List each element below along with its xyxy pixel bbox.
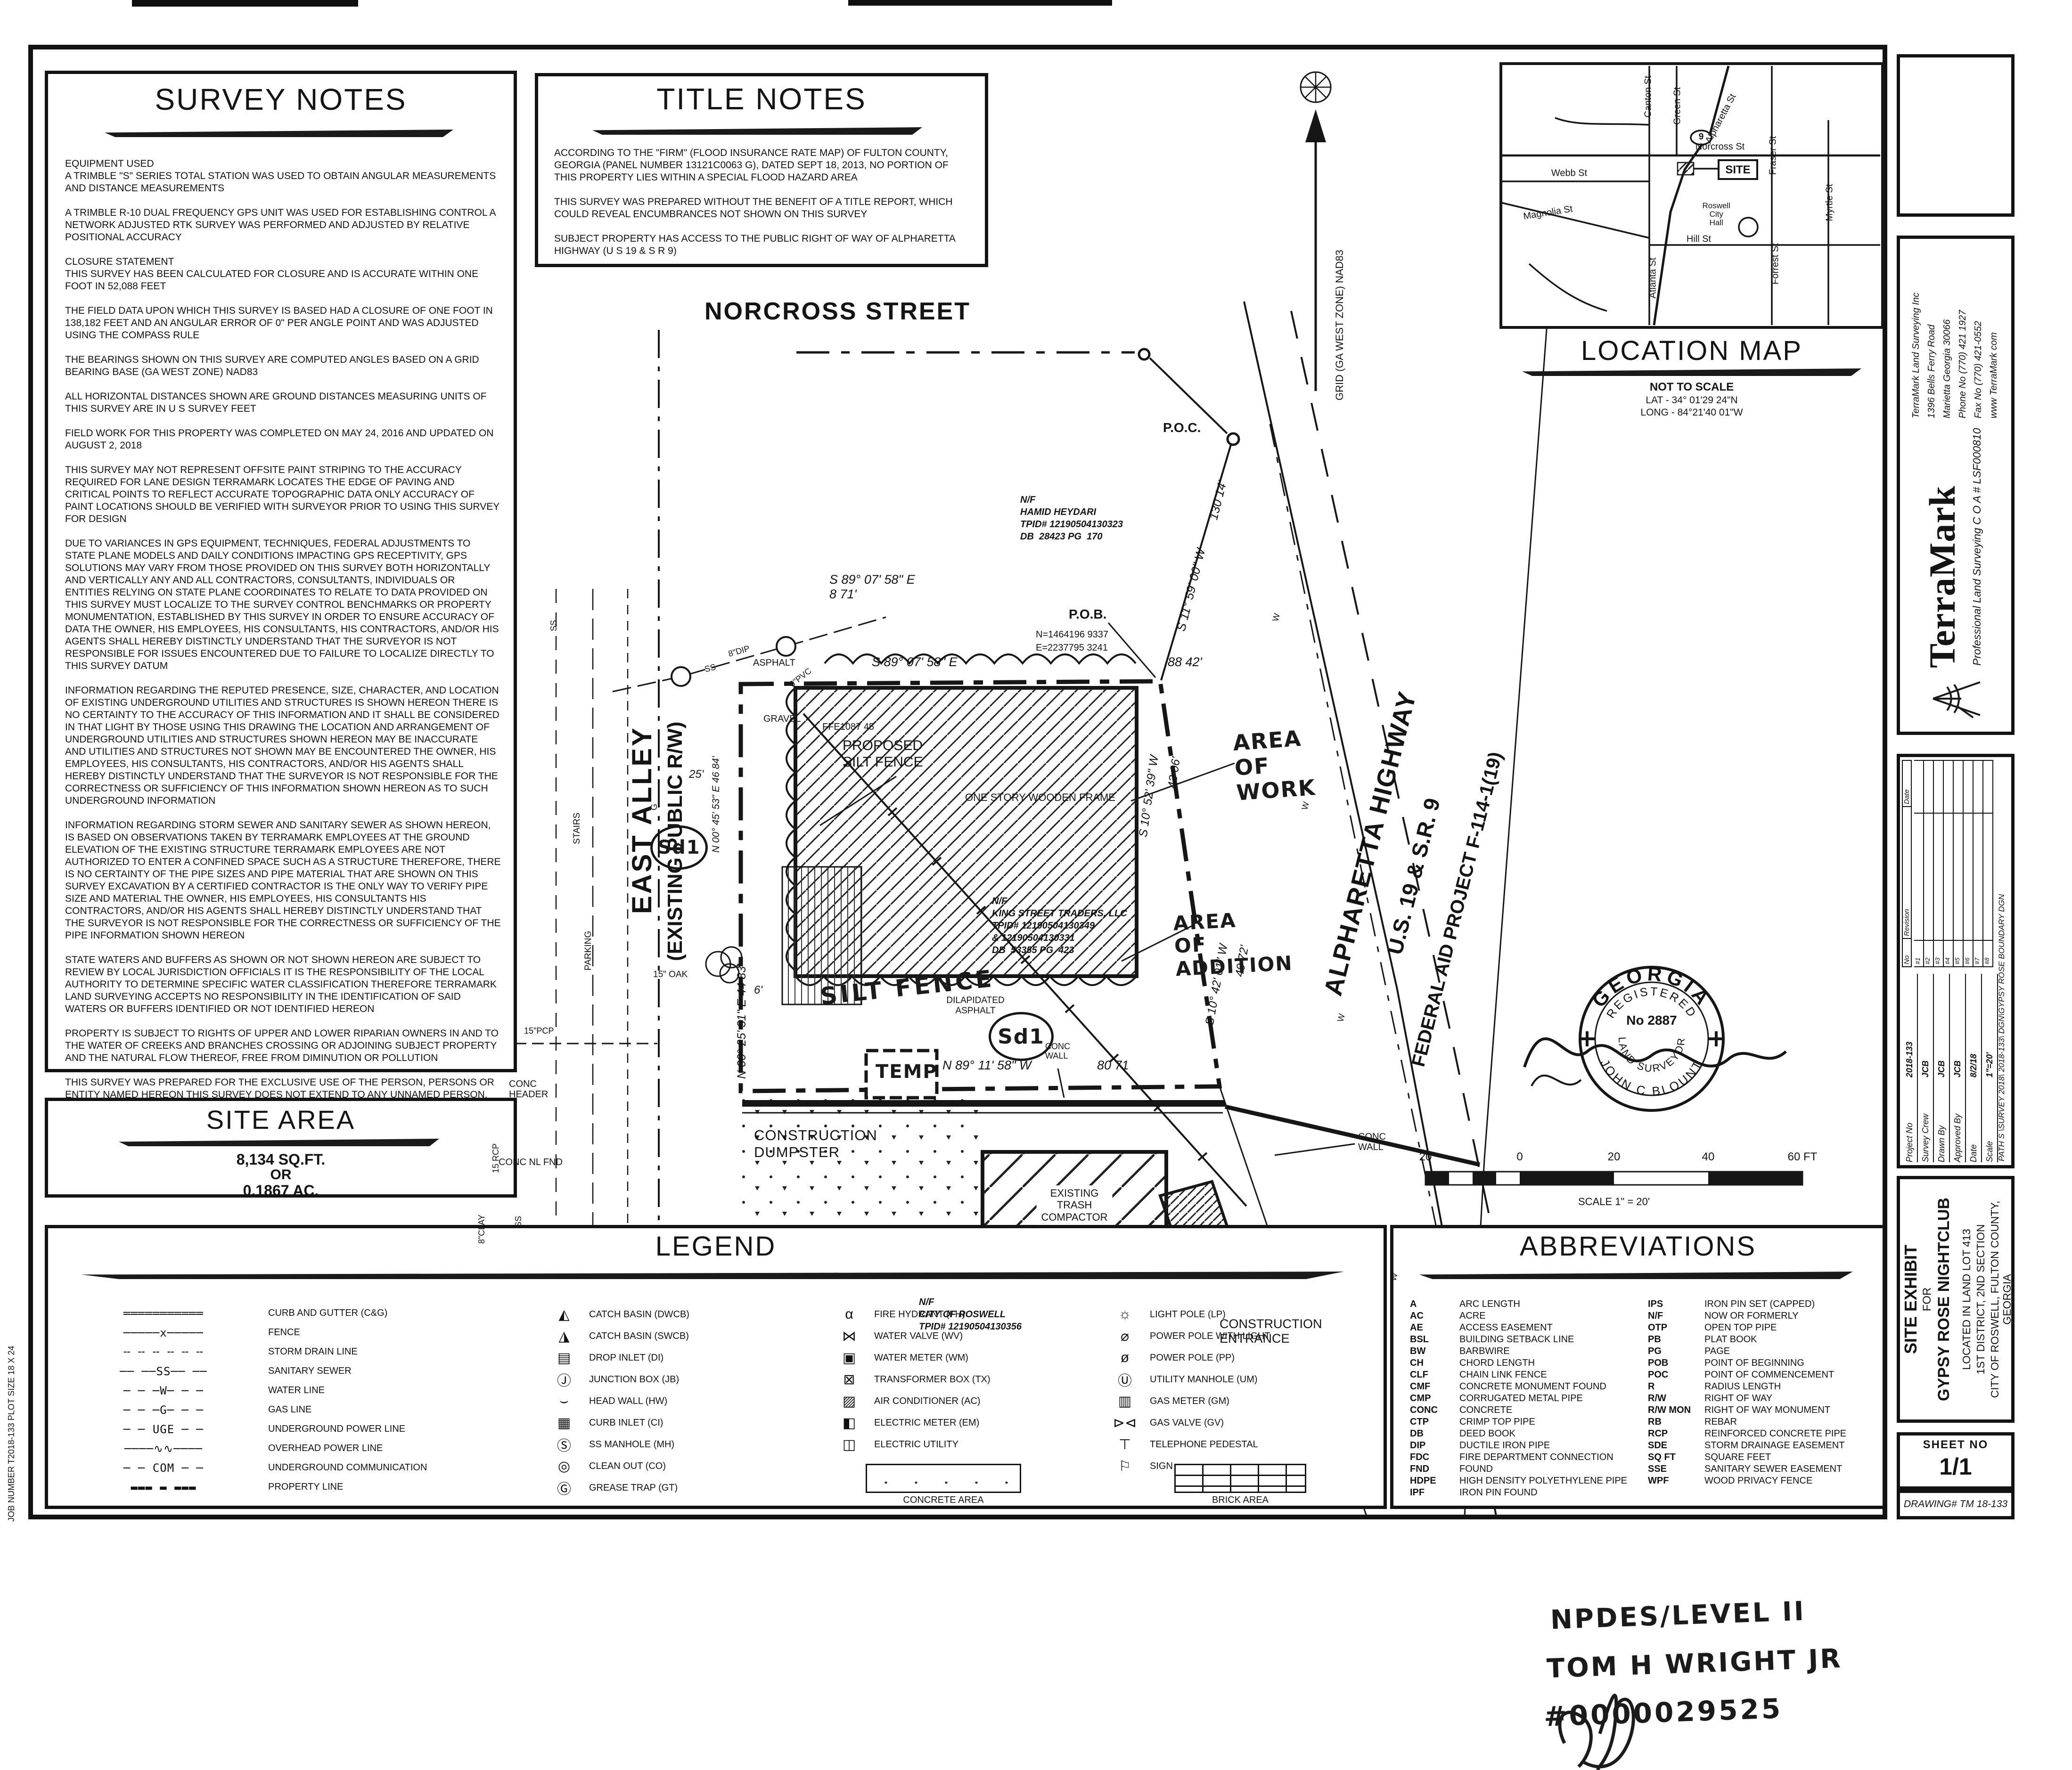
legend-symbol-icon: ⌣ bbox=[548, 1393, 581, 1409]
boundary-west-bearing-1: N 00° 45' 53" E 46 84' bbox=[711, 693, 722, 853]
sd1-callout: Sd1 bbox=[650, 825, 708, 870]
survey-notes-panel: SURVEY NOTES EQUIPMENT USED A TRIMBLE "S… bbox=[45, 71, 517, 1072]
legend-symbol-icon: Ⓖ bbox=[548, 1477, 581, 1498]
survey-note-paragraph: STATE WATERS AND BUFFERS AS SHOWN OR NOT… bbox=[65, 954, 501, 1015]
sheet-no-label: SHEET NO bbox=[1900, 1438, 2011, 1452]
legend-item: ◭ CATCH BASIN (DWCB) bbox=[548, 1304, 811, 1325]
site-callout: SITE bbox=[1718, 159, 1758, 180]
legend-item: ── ──SS── ── SANITARY SEWER bbox=[69, 1362, 522, 1381]
legend-item-label: CURB INLET (CI) bbox=[589, 1418, 663, 1428]
boundary-west-bearing-2: N 00° 25' 31" E 44 83' bbox=[735, 909, 749, 1079]
field-label: Project No bbox=[1905, 1077, 1915, 1162]
legend-item: ─ ─ ─G─ ─ ─ GAS LINE bbox=[69, 1400, 522, 1419]
abbreviation-entry: R RADIUS LENGTH bbox=[1648, 1381, 1884, 1393]
legend-item: ▥ GAS METER (GM) bbox=[1108, 1390, 1372, 1412]
abbreviations-col1: A ARC LENGTH AC ACRE AE ACCESS EASEMENT … bbox=[1410, 1299, 1636, 1499]
survey-note-paragraph: PROPERTY IS SUBJECT TO RIGHTS OF UPPER A… bbox=[65, 1028, 501, 1064]
legend-item-label: UNDERGROUND POWER LINE bbox=[268, 1424, 405, 1435]
revision-row: #1 bbox=[1914, 760, 1924, 967]
legend-item: Ⓢ SS MANHOLE (MH) bbox=[548, 1434, 811, 1455]
legend-item-label: JUNCTION BOX (JB) bbox=[589, 1374, 679, 1385]
abbreviation-code: IPS bbox=[1648, 1299, 1704, 1311]
abbreviation-entry: R/W MON RIGHT OF WAY MONUMENT bbox=[1648, 1405, 1884, 1417]
concrete-area-swatch bbox=[866, 1464, 1021, 1493]
abbreviation-entry: FND FOUND bbox=[1410, 1464, 1636, 1476]
abbreviation-code: DB bbox=[1410, 1428, 1459, 1440]
route-shield: 9 bbox=[1699, 132, 1704, 142]
abbreviation-entry: FDC FIRE DEPARTMENT CONNECTION bbox=[1410, 1452, 1636, 1464]
revision-field-row: Approved By JCB bbox=[1950, 974, 1966, 1162]
abbreviations-col2: IPS IRON PIN SET (CAPPED) N/F NOW OR FOR… bbox=[1648, 1299, 1884, 1487]
legend-symbol-icon: ▨ bbox=[833, 1393, 866, 1410]
legend-item-label: GAS LINE bbox=[268, 1404, 311, 1415]
abbreviation-term: PAGE bbox=[1704, 1346, 1730, 1358]
legend-item-label: HEAD WALL (HW) bbox=[589, 1396, 667, 1407]
revision-row: #8 bbox=[1983, 760, 1993, 967]
legend-symbol-icon: ⋈ bbox=[833, 1328, 866, 1345]
revision-number: #8 bbox=[1983, 940, 1992, 966]
revision-number: #2 bbox=[1924, 940, 1933, 966]
revision-field-row: Survey Crew JCB bbox=[1918, 974, 1934, 1162]
abbreviation-code: OTP bbox=[1648, 1322, 1704, 1334]
abbreviation-term: FIRE DEPARTMENT CONNECTION bbox=[1459, 1452, 1613, 1464]
legend-symbol-icon: ⊳⊲ bbox=[1108, 1415, 1141, 1431]
line-style-icon: ▬▬▬ ▬ ▬▬▬ bbox=[69, 1481, 258, 1494]
legend-item: ø POWER POLE (PP) bbox=[1108, 1347, 1372, 1369]
dimension-6ft: 6' bbox=[754, 984, 762, 997]
revision-col-no: No bbox=[1902, 938, 1911, 967]
survey-note-paragraph: DUE TO VARIANCES IN GPS EQUIPMENT, TECHN… bbox=[65, 538, 501, 672]
pob-northing: N=1464196 9337 bbox=[1036, 629, 1108, 640]
legend-item-label: GAS VALVE (GV) bbox=[1150, 1418, 1224, 1428]
survey-note-paragraph: ALL HORIZONTAL DISTANCES SHOWN ARE GROUN… bbox=[65, 391, 501, 415]
abbreviation-term: CHAIN LINK FENCE bbox=[1459, 1370, 1547, 1381]
boundary-bottom-distance: 80 71 bbox=[1097, 1058, 1129, 1073]
legend-symbol-icon: ⚐ bbox=[1108, 1458, 1141, 1475]
abbreviation-entry: OTP OPEN TOP PIPE bbox=[1648, 1322, 1884, 1334]
legend-item-label: STORM DRAIN LINE bbox=[268, 1346, 358, 1357]
abbreviation-term: DEED BOOK bbox=[1459, 1428, 1515, 1440]
abbreviation-entry: SSE SANITARY SEWER EASEMENT bbox=[1648, 1464, 1884, 1476]
legend-symbol-icon: ▣ bbox=[833, 1350, 866, 1366]
abbreviation-code: PG bbox=[1648, 1346, 1704, 1358]
abbreviation-term: NOW OR FORMERLY bbox=[1704, 1311, 1799, 1322]
legend-symbol-icon: Ⓢ bbox=[548, 1434, 581, 1455]
file-path: PATH S \SURVEY 2018\ 2018-133\ DGN\GYPSY… bbox=[1997, 894, 2006, 1161]
legend-symbol-icon: ø bbox=[1108, 1350, 1141, 1366]
brick-area-label: BRICK AREA bbox=[1174, 1495, 1306, 1506]
field-value: JCB bbox=[1953, 1060, 1963, 1077]
abbreviation-entry: IPS IRON PIN SET (CAPPED) bbox=[1648, 1299, 1884, 1311]
line-style-icon: ─ ─ ─G─ ─ ─ bbox=[69, 1403, 258, 1417]
legend-item: ⊠ TRANSFORMER BOX (TX) bbox=[833, 1369, 1097, 1390]
revision-desc bbox=[1954, 813, 1963, 940]
legend-item: ▦ CURB INLET (CI) bbox=[548, 1412, 811, 1434]
legend-item: ▣ WATER METER (WM) bbox=[833, 1347, 1097, 1369]
street-fraser: Fraser St bbox=[1768, 136, 1779, 175]
abbreviation-entry: AC ACRE bbox=[1410, 1311, 1636, 1322]
legend-symbol-icon: ◫ bbox=[833, 1436, 866, 1453]
title-underline bbox=[592, 127, 922, 135]
legend-item-label: DROP INLET (DI) bbox=[589, 1353, 663, 1363]
legend-item-label: PROPERTY LINE bbox=[268, 1482, 343, 1493]
revision-field-row: Scale 1"=20' bbox=[1982, 974, 1998, 1162]
survey-note-paragraph: FIELD WORK FOR THIS PROPERTY WAS COMPLET… bbox=[65, 427, 501, 452]
legend-item-label: FENCE bbox=[268, 1327, 300, 1338]
abbreviation-code: RB bbox=[1648, 1417, 1704, 1428]
abbreviation-term: BARBWIRE bbox=[1459, 1346, 1510, 1358]
oak-tree-label: 15" OAK bbox=[653, 970, 688, 980]
terramark-box: TerraMark Professional Land Surveying C … bbox=[1897, 236, 2015, 735]
abbreviation-code: PB bbox=[1648, 1334, 1704, 1346]
abbreviation-term: SQUARE FEET bbox=[1704, 1452, 1771, 1464]
field-value: 1"=20' bbox=[1985, 1052, 1995, 1077]
revision-desc bbox=[1964, 813, 1973, 940]
title-note-paragraph: ACCORDING TO THE "FIRM" (FLOOD INSURANCE… bbox=[554, 147, 974, 184]
title-underline bbox=[105, 130, 453, 137]
abbreviation-entry: CH CHORD LENGTH bbox=[1410, 1358, 1636, 1370]
abbreviation-term: POINT OF COMMENCEMENT bbox=[1704, 1370, 1834, 1381]
legend-item-label: SS MANHOLE (MH) bbox=[589, 1439, 674, 1450]
site-area-title: SITE AREA bbox=[48, 1105, 514, 1135]
abbreviation-code: CTP bbox=[1410, 1417, 1459, 1428]
line-style-icon: ╌ ╌ ╌ ╌ ╌ ╌ bbox=[69, 1346, 258, 1359]
pcp-15-label: 15"PCP bbox=[524, 1026, 554, 1036]
exhibit-city: CITY OF ROSWELL, FULTON COUNTY, GEORGIA bbox=[1989, 1179, 2014, 1419]
legend-symbol-icon: ⌀ bbox=[1108, 1328, 1141, 1345]
street-canton: Canton St bbox=[1643, 76, 1654, 118]
drawing-number-box: DRAWING# TM 18-133 bbox=[1897, 1490, 2015, 1519]
survey-notes-title: SURVEY NOTES bbox=[48, 82, 514, 117]
exhibit-landlot: LOCATED IN LAND LOT 413 bbox=[1960, 1179, 1973, 1419]
clay-8-label: 8"CLAY bbox=[477, 1187, 487, 1244]
street-norcross: Norcross St bbox=[1695, 142, 1744, 153]
abbreviation-code: A bbox=[1410, 1299, 1459, 1311]
abbreviation-term: PLAT BOOK bbox=[1704, 1334, 1757, 1346]
abbreviation-entry: POB POINT OF BEGINNING bbox=[1648, 1358, 1884, 1370]
legend-symbol-icon: ▤ bbox=[548, 1350, 581, 1366]
legend-item-label: UTILITY MANHOLE (UM) bbox=[1150, 1374, 1258, 1385]
trash-compactor-label: EXISTING TRASH COMPACTOR bbox=[1037, 1185, 1113, 1225]
abbreviation-code: CMP bbox=[1410, 1393, 1459, 1405]
revision-col-date: Date bbox=[1902, 760, 1911, 807]
revision-number: #6 bbox=[1964, 940, 1973, 966]
abbreviation-term: FOUND bbox=[1459, 1464, 1493, 1476]
survey-note-paragraph: EQUIPMENT USED A TRIMBLE "S" SERIES TOTA… bbox=[65, 158, 501, 195]
city-hall-label: Roswell City Hall bbox=[1702, 202, 1730, 227]
ffe-label: FFE1087 45 bbox=[822, 722, 874, 733]
legend-item: ⊤ TELEPHONE PEDESTAL bbox=[1108, 1434, 1372, 1455]
abbreviation-entry: CMP CORRUGATED METAL PIPE bbox=[1410, 1393, 1636, 1405]
abbreviation-entry: WPF WOOD PRIVACY FENCE bbox=[1648, 1476, 1884, 1487]
abbreviation-term: WOOD PRIVACY FENCE bbox=[1704, 1476, 1812, 1487]
abbreviation-code: SDE bbox=[1648, 1440, 1704, 1452]
abbreviation-term: BUILDING SETBACK LINE bbox=[1459, 1334, 1574, 1346]
field-label: Survey Crew bbox=[1921, 1077, 1931, 1162]
field-value: 2018-133 bbox=[1905, 1042, 1915, 1077]
abbreviation-code: CONC bbox=[1410, 1405, 1459, 1417]
pob-label: P.O.B. bbox=[1069, 607, 1106, 622]
abbreviation-term: SANITARY SEWER EASEMENT bbox=[1704, 1464, 1842, 1476]
legend-symbol-icon: ▦ bbox=[548, 1415, 581, 1431]
abbreviation-entry: BSL BUILDING SETBACK LINE bbox=[1410, 1334, 1636, 1346]
east-alley-label: EAST ALLEY bbox=[627, 358, 658, 914]
abbreviation-code: SQ FT bbox=[1648, 1452, 1704, 1464]
legend-symbol-icon: Ⓤ bbox=[1108, 1369, 1141, 1390]
pob-easting: E=2237795 3241 bbox=[1036, 643, 1108, 653]
line-style-icon: ────∿∿──── bbox=[69, 1442, 258, 1455]
legend-panel: LEGEND ═══════════ CURB AND GUTTER (C&G)… bbox=[45, 1225, 1387, 1509]
abbreviation-entry: POC POINT OF COMMENCEMENT bbox=[1648, 1370, 1884, 1381]
conc-wall-label: CONC WALL bbox=[1358, 1132, 1386, 1152]
street-webb: Webb St bbox=[1551, 168, 1587, 179]
abbreviation-code: WPF bbox=[1648, 1476, 1704, 1487]
legend-item-label: ELECTRIC UTILITY bbox=[874, 1439, 958, 1450]
abbreviation-term: POINT OF BEGINNING bbox=[1704, 1358, 1804, 1370]
legend-symbol-icon: ⊤ bbox=[1108, 1436, 1141, 1453]
dimension-25ft: 25' bbox=[689, 768, 704, 781]
location-map-lat: LAT - 34° 01'29 24"N bbox=[1501, 395, 1883, 406]
exhibit-district: 1ST DISTRICT, 2ND SECTION bbox=[1974, 1179, 1987, 1419]
legend-item-label: CLEAN OUT (CO) bbox=[589, 1461, 666, 1472]
site-area-sqft: 8,134 SQ.FT. bbox=[48, 1151, 514, 1168]
survey-note-paragraph: A TRIMBLE R-10 DUAL FREQUENCY GPS UNIT W… bbox=[65, 207, 501, 244]
exhibit-client: GYPSY ROSE NIGHTCLUB bbox=[1935, 1179, 1953, 1419]
revision-number: #7 bbox=[1974, 940, 1982, 966]
legend-item: ─ ─ ─W─ ─ ─ WATER LINE bbox=[69, 1381, 522, 1400]
legend-item-label: SIGN bbox=[1150, 1461, 1173, 1472]
asphalt-label: ASPHALT bbox=[753, 658, 795, 669]
abbreviation-entry: CLF CHAIN LINK FENCE bbox=[1410, 1370, 1636, 1381]
legend-symbol-icon: ☼ bbox=[1108, 1306, 1141, 1322]
abbreviation-term: HIGH DENSITY POLYETHYLENE PIPE bbox=[1459, 1476, 1627, 1487]
legend-item: Ⓙ JUNCTION BOX (JB) bbox=[548, 1369, 811, 1390]
revision-row: #4 bbox=[1944, 760, 1954, 967]
terramark-logo: TerraMark bbox=[1921, 486, 1964, 668]
rcp-15-label: 15 RCP bbox=[491, 1121, 501, 1173]
abbreviation-code: IPF bbox=[1410, 1487, 1459, 1499]
conc-header-label: CONC HEADER bbox=[509, 1079, 548, 1100]
abbreviation-code: N/F bbox=[1648, 1311, 1704, 1322]
field-label: Approved By bbox=[1953, 1077, 1963, 1162]
revision-desc bbox=[1974, 813, 1982, 940]
field-label: Drawn By bbox=[1937, 1077, 1947, 1162]
legend-item: ═══════════ CURB AND GUTTER (C&G) bbox=[69, 1304, 522, 1323]
revision-desc bbox=[1914, 813, 1923, 940]
brick-area-swatch bbox=[1174, 1464, 1306, 1493]
abbreviation-term: CRIMP TOP PIPE bbox=[1459, 1417, 1535, 1428]
legend-item: ────∿∿──── OVERHEAD POWER LINE bbox=[69, 1439, 522, 1458]
revision-rows: #1 #2 #3 #4 bbox=[1914, 760, 1993, 967]
abbreviation-entry: RCP REINFORCED CONCRETE PIPE bbox=[1648, 1428, 1884, 1440]
abbreviation-entry: CTP CRIMP TOP PIPE bbox=[1410, 1417, 1636, 1428]
title-note-paragraph: SUBJECT PROPERTY HAS ACCESS TO THE PUBLI… bbox=[554, 233, 974, 257]
legend-line-items: ═══════════ CURB AND GUTTER (C&G) ─────x… bbox=[69, 1304, 522, 1497]
abbreviation-entry: IPF IRON PIN FOUND bbox=[1410, 1487, 1636, 1499]
revision-row: #2 bbox=[1924, 760, 1934, 967]
legend-item-label: UNDERGROUND COMMUNICATION bbox=[268, 1462, 427, 1473]
legend-item: ─────x───── FENCE bbox=[69, 1323, 522, 1342]
legend-item-label: TELEPHONE PEDESTAL bbox=[1150, 1439, 1258, 1450]
abbreviation-code: FND bbox=[1410, 1464, 1459, 1476]
title-notes-title: TITLE NOTES bbox=[538, 82, 985, 117]
legend-item-label: POWER POLE (PP) bbox=[1150, 1353, 1235, 1363]
sd1-callout: Sd1 bbox=[989, 1012, 1054, 1061]
revision-col-revision: Revision bbox=[1902, 807, 1911, 938]
parking-label: PARKING bbox=[583, 905, 594, 971]
abbreviation-term: REINFORCED CONCRETE PIPE bbox=[1704, 1428, 1846, 1440]
survey-note-paragraph: THE FIELD DATA UPON WHICH THIS SURVEY IS… bbox=[65, 305, 501, 342]
abbreviation-term: CONCRETE bbox=[1459, 1405, 1512, 1417]
site-area-acres: 0.1867 AC. bbox=[48, 1182, 514, 1199]
abbreviation-term: STORM DRAINAGE EASEMENT bbox=[1704, 1440, 1844, 1452]
abbreviation-term: ARC LENGTH bbox=[1459, 1299, 1520, 1311]
legend-item-label: WATER METER (WM) bbox=[874, 1353, 968, 1363]
legend-item-label: AIR CONDITIONER (AC) bbox=[874, 1396, 981, 1407]
bearing-segment-1: S 89° 07' 58" E 8 71' bbox=[829, 572, 915, 602]
abbreviation-code: FDC bbox=[1410, 1452, 1459, 1464]
abbreviation-term: IRON PIN SET (CAPPED) bbox=[1704, 1299, 1815, 1311]
abbreviation-entry: R/W RIGHT OF WAY bbox=[1648, 1393, 1884, 1405]
sheet-number-box: SHEET NO 1/1 bbox=[1897, 1432, 2015, 1490]
field-value: JCB bbox=[1937, 1060, 1947, 1077]
legend-item: ⌣ HEAD WALL (HW) bbox=[548, 1390, 811, 1412]
legend-item: Ⓖ GREASE TRAP (GT) bbox=[548, 1477, 811, 1499]
field-label: Date bbox=[1969, 1077, 1979, 1162]
abbreviation-code: DIP bbox=[1410, 1440, 1459, 1452]
legend-symbol-icon: ◮ bbox=[548, 1328, 581, 1345]
gas-label: G bbox=[649, 791, 659, 810]
abbreviation-entry: SDE STORM DRAINAGE EASEMENT bbox=[1648, 1440, 1884, 1452]
survey-note-paragraph: INFORMATION REGARDING STORM SEWER AND SA… bbox=[65, 819, 501, 942]
line-style-icon: ─────x───── bbox=[69, 1326, 258, 1339]
street-atlanta: Atlanta St bbox=[1648, 258, 1659, 299]
legend-item: ◧ ELECTRIC METER (EM) bbox=[833, 1412, 1097, 1434]
legend-item: ◫ ELECTRIC UTILITY bbox=[833, 1434, 1097, 1455]
legend-item: ▤ DROP INLET (DI) bbox=[548, 1347, 811, 1369]
dilapidated-asphalt-label: DILAPIDATED ASPHALT bbox=[946, 995, 1004, 1016]
revision-number: #3 bbox=[1934, 940, 1943, 966]
job-number-margin-note: JOB NUMBER T2018-133 PLOT SIZE 18 X 24 bbox=[7, 1244, 16, 1522]
street-green: Green St bbox=[1672, 87, 1683, 125]
legend-item: ◮ CATCH BASIN (SWCB) bbox=[548, 1325, 811, 1347]
revision-grid: No Revision Date bbox=[1902, 760, 1912, 967]
title-underline bbox=[81, 1272, 1344, 1279]
title-notes-panel: TITLE NOTES ACCORDING TO THE "FIRM" (FLO… bbox=[535, 73, 988, 267]
norcross-street-label: NORCROSS STREET bbox=[704, 298, 971, 326]
conc-nail-found-label: CONC NL FND bbox=[499, 1157, 563, 1168]
building-label: ONE STORY WOODEN FRAME bbox=[965, 791, 1115, 803]
abbreviation-code: AC bbox=[1410, 1311, 1459, 1322]
abbreviation-entry: RB REBAR bbox=[1648, 1417, 1884, 1428]
revision-desc bbox=[1983, 813, 1992, 940]
scale-tick-60ft: 60 FT bbox=[1788, 1150, 1818, 1164]
abbreviation-term: RADIUS LENGTH bbox=[1704, 1381, 1781, 1393]
revision-desc bbox=[1944, 813, 1953, 940]
abbreviation-entry: AE ACCESS EASEMENT bbox=[1410, 1322, 1636, 1334]
survey-note-paragraph: INFORMATION REGARDING THE REPUTED PRESEN… bbox=[65, 685, 501, 807]
scale-tick-0: 0 bbox=[1516, 1150, 1523, 1164]
terramark-tagline: Professional Land Surveying C O A # LSF0… bbox=[1971, 428, 1983, 666]
revision-field-row: Date 8/2/18 bbox=[1966, 974, 1982, 1162]
revision-number: #5 bbox=[1954, 940, 1963, 966]
legend-item: ─ ─ COM ─ ─ UNDERGROUND COMMUNICATION bbox=[69, 1458, 522, 1477]
legend-item: ▨ AIR CONDITIONER (AC) bbox=[833, 1390, 1097, 1412]
abbreviation-entry: CMF CONCRETE MONUMENT FOUND bbox=[1410, 1381, 1636, 1393]
abbreviations-panel: ABBREVIATIONS A ARC LENGTH AC ACRE AE AC… bbox=[1390, 1225, 1886, 1509]
proposed-silt-fence-label: PROPOSED SILT FENCE bbox=[843, 738, 923, 770]
legend-item: ◎ CLEAN OUT (CO) bbox=[548, 1455, 811, 1477]
legend-title: LEGEND bbox=[48, 1231, 1384, 1263]
abbreviation-code: R bbox=[1648, 1381, 1704, 1393]
legend-symbol-icon: ▥ bbox=[1108, 1393, 1141, 1410]
boundary-top-bearing: S 89° 07' 58" E bbox=[872, 655, 958, 669]
site-area-panel: SITE AREA 8,134 SQ.FT. OR 0.1867 AC. bbox=[45, 1098, 517, 1198]
legend-item: ─ ─ UGE ─ ─ UNDERGROUND POWER LINE bbox=[69, 1419, 522, 1439]
revision-row: #7 bbox=[1974, 760, 1983, 967]
field-value: JCB bbox=[1921, 1060, 1931, 1077]
abbreviation-term: RIGHT OF WAY bbox=[1704, 1393, 1772, 1405]
construction-dumpster-label: CONSTRUCTION DUMPSTER bbox=[754, 1127, 877, 1160]
abbreviation-term: DUCTILE IRON PIPE bbox=[1459, 1440, 1550, 1452]
abbreviation-entry: BW BARBWIRE bbox=[1410, 1346, 1636, 1358]
survey-note-paragraph: CLOSURE STATEMENT THIS SURVEY HAS BEEN C… bbox=[65, 256, 501, 293]
revision-row: #5 bbox=[1954, 760, 1964, 967]
abbreviation-entry: DIP DUCTILE IRON PIPE bbox=[1410, 1440, 1636, 1452]
legend-item: ⊳⊲ GAS VALVE (GV) bbox=[1108, 1412, 1372, 1434]
abbreviation-code: POC bbox=[1648, 1370, 1704, 1381]
abbreviation-code: POB bbox=[1648, 1358, 1704, 1370]
line-style-icon: ═══════════ bbox=[69, 1307, 258, 1320]
abbreviations-title: ABBREVIATIONS bbox=[1393, 1231, 1883, 1263]
legend-item-label: TRANSFORMER BOX (TX) bbox=[874, 1374, 991, 1385]
adjoiner-city-of-roswell: N/F CITY OF ROSWELL TPID# 12190504130356 bbox=[919, 1296, 924, 1333]
title-underline bbox=[119, 1139, 439, 1146]
legend-item-label: GREASE TRAP (GT) bbox=[589, 1483, 678, 1493]
abbreviation-term: RIGHT OF WAY MONUMENT bbox=[1704, 1405, 1830, 1417]
terramark-address: TerraMark Land Surveying Inc 1396 Bells … bbox=[1908, 293, 2002, 418]
abbreviation-code: R/W MON bbox=[1648, 1405, 1704, 1417]
revision-desc bbox=[1934, 813, 1943, 940]
legend-item-label: CATCH BASIN (SWCB) bbox=[589, 1331, 689, 1342]
legend-item-label: CURB AND GUTTER (C&G) bbox=[268, 1308, 387, 1319]
survey-note-paragraph: THE BEARINGS SHOWN ON THIS SURVEY ARE CO… bbox=[65, 354, 501, 378]
site-area-or: OR bbox=[48, 1167, 514, 1183]
stairs-label: STAIRS bbox=[572, 788, 582, 844]
line-style-icon: ─ ─ ─W─ ─ ─ bbox=[69, 1384, 258, 1397]
revision-number: #4 bbox=[1944, 940, 1953, 966]
abbreviation-entry: DB DEED BOOK bbox=[1410, 1428, 1636, 1440]
abbreviation-code: BW bbox=[1410, 1346, 1459, 1358]
titleblock-spacer-box bbox=[1897, 54, 2015, 217]
revision-row: #3 bbox=[1934, 760, 1944, 967]
abbreviation-entry: SQ FT SQUARE FEET bbox=[1648, 1452, 1884, 1464]
legend-item-label: LIGHT POLE (LP) bbox=[1150, 1309, 1226, 1320]
legend-symbol-icon: ◧ bbox=[833, 1415, 866, 1431]
legend-symbol-items-col2: ◭ CATCH BASIN (DWCB) ◮ CATCH BASIN (SWCB… bbox=[548, 1304, 811, 1499]
sheet-no-value: 1/1 bbox=[1900, 1453, 2011, 1481]
location-map-long: LONG - 84°21'40 01"W bbox=[1501, 407, 1883, 418]
abbreviation-entry: PG PAGE bbox=[1648, 1346, 1884, 1358]
location-map-nts: NOT TO SCALE bbox=[1501, 381, 1883, 394]
grid-note-label: GRID (GA WEST ZONE) NAD83 bbox=[1334, 221, 1345, 400]
street-myrtle: Myrtle St bbox=[1825, 184, 1835, 221]
poc-label: P.O.C. bbox=[1163, 420, 1201, 435]
abbreviation-entry: PB PLAT BOOK bbox=[1648, 1334, 1884, 1346]
abbreviation-term: ACRE bbox=[1459, 1311, 1486, 1322]
scale-label: SCALE 1" = 20' bbox=[1578, 1196, 1650, 1207]
legend-item-label: CATCH BASIN (DWCB) bbox=[589, 1309, 689, 1320]
